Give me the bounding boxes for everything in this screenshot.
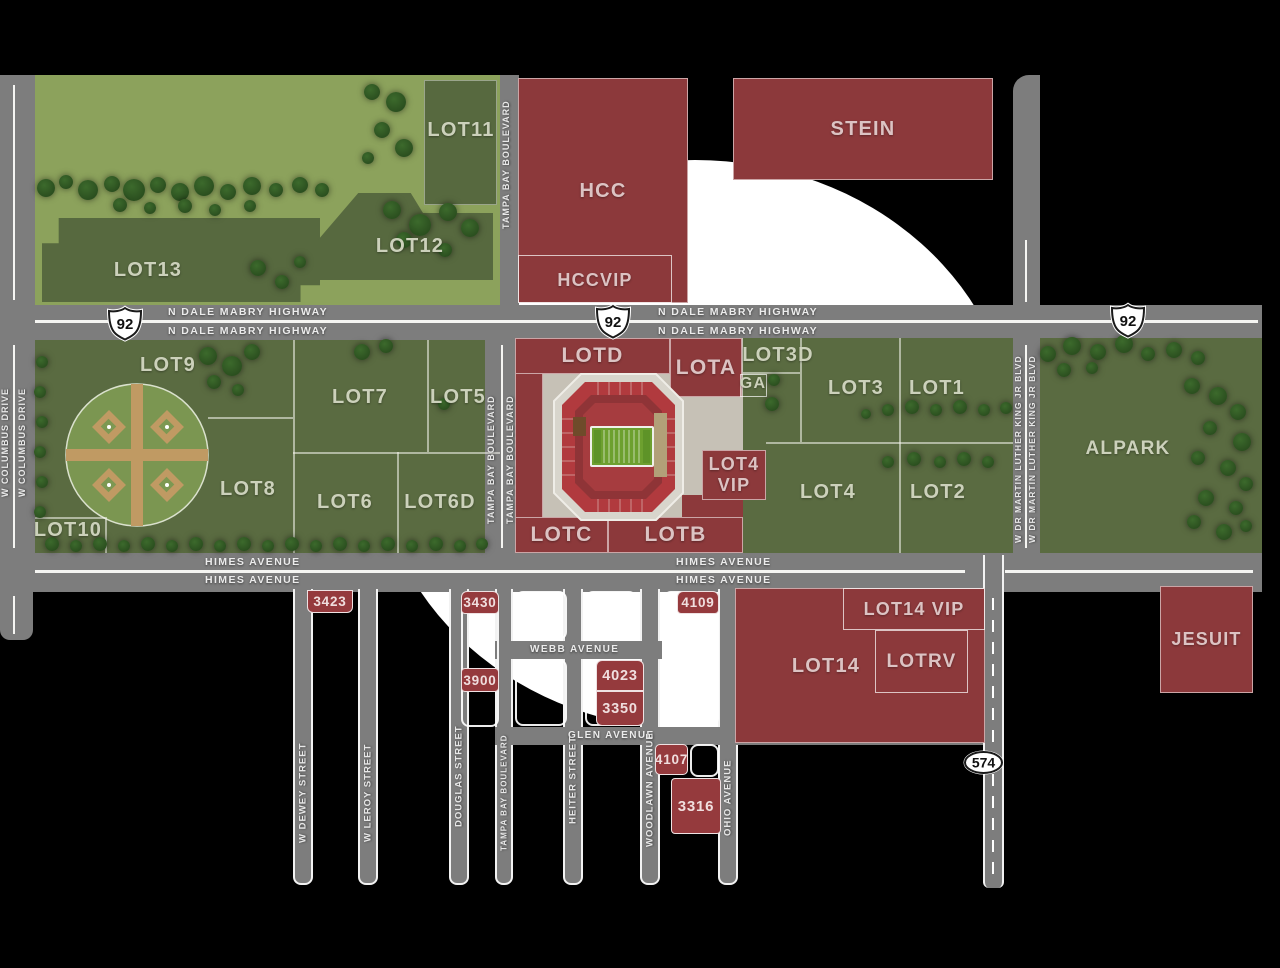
road-himes-label: HIMES AVENUE: [676, 574, 772, 586]
street-dewey-label: W DEWEY STREET: [294, 704, 312, 882]
route-92-text: 92: [1120, 313, 1137, 330]
lot-5-label[interactable]: LOT5: [398, 386, 518, 409]
street-ohio-label: OHIO AVENUE: [719, 714, 737, 882]
road-mlk-label: W DR MARTIN LUTHER KING JR BLVD: [1025, 338, 1039, 560]
road-dale-mabry-label: N DALE MABRY HIGHWAY: [658, 306, 818, 318]
road-tampa-bay-label: TAMPA BAY BOULEVARD: [483, 370, 499, 550]
center-line: [35, 320, 1258, 323]
street-heiter-label: HEITER STREET: [564, 695, 582, 865]
road-himes-label: HIMES AVENUE: [205, 556, 301, 568]
route-574-shield: 574: [963, 750, 1004, 775]
lot-9-label[interactable]: LOT9: [108, 354, 228, 377]
lot-6d-label[interactable]: LOT6D: [380, 491, 500, 514]
city-block: [515, 659, 567, 726]
route-574-text: 574: [972, 755, 996, 771]
lot-divider: [293, 340, 295, 553]
lot-13-label: LOT13: [88, 259, 208, 282]
lot-1-label[interactable]: LOT1: [877, 377, 997, 400]
lot14vip-label: LOT14 VIP: [864, 599, 965, 620]
city-block: [690, 744, 719, 777]
lot-4107[interactable]: 4107: [655, 744, 688, 775]
city-block: [585, 591, 637, 640]
center-line: [1005, 570, 1253, 573]
street-tampa-bay-label: TAMPA BAY BOULEVARD: [495, 705, 513, 880]
lot-3350[interactable]: 3350: [596, 691, 644, 726]
lot-4023[interactable]: 4023: [596, 660, 644, 691]
lotb-label: LOTB: [645, 523, 707, 547]
lot-d[interactable]: LOTD: [515, 338, 670, 374]
lot-3d-label[interactable]: LOT3D: [718, 344, 838, 367]
lotrv-label: LOTRV: [886, 651, 956, 673]
route-92-shield: 92: [594, 303, 632, 340]
lot-4-vip[interactable]: LOT4 VIP: [702, 450, 766, 500]
road-himes-label: HIMES AVENUE: [676, 556, 772, 568]
lot14-label: LOT14: [766, 655, 886, 678]
lots-east-green: [743, 338, 1013, 553]
lot-stein[interactable]: STEIN: [733, 78, 993, 180]
lot-divider: [766, 442, 1013, 444]
lot-divider: [208, 417, 293, 419]
street-leroy-label: W LEROY STREET: [359, 704, 377, 882]
lot4vip-label-2: VIP: [718, 475, 751, 496]
lot4vip-label-1: LOT4: [709, 454, 760, 475]
road-columbus-label: W COLUMBUS DRIVE: [0, 350, 12, 535]
lot-4109[interactable]: 4109: [677, 591, 719, 614]
lot-14-vip[interactable]: LOT14 VIP: [843, 588, 985, 630]
center-line: [35, 570, 965, 573]
lot-3316[interactable]: 3316: [671, 778, 721, 834]
ga-label: GA: [693, 375, 813, 393]
lot-3900[interactable]: 3900: [461, 668, 499, 692]
lot-11[interactable]: [424, 80, 497, 205]
road-dale-mabry-label: N DALE MABRY HIGHWAY: [168, 325, 328, 337]
lot-3423[interactable]: 3423: [307, 590, 353, 613]
stein-label: STEIN: [831, 118, 896, 141]
lot-12-label: LOT12: [350, 235, 470, 258]
lotd-label: LOTD: [562, 344, 624, 368]
road-dale-mabry-label: N DALE MABRY HIGHWAY: [658, 325, 818, 337]
road-columbus-label: W COLUMBUS DRIVE: [15, 350, 29, 535]
road-tampa-bay-label: TAMPA BAY BOULEVARD: [502, 370, 518, 550]
street-woodlawn-label: WOODLAWN AVENUE: [641, 700, 659, 880]
route-92-shield: 92: [1109, 302, 1147, 339]
road-tampa-bay-label: TAMPA BAY BOULEVARD: [498, 85, 514, 245]
road-dale-mabry-label: N DALE MABRY HIGHWAY: [168, 306, 328, 318]
lane-line: [1025, 240, 1027, 302]
lot-4-label[interactable]: LOT4: [768, 481, 888, 504]
hcc-label: HCC: [543, 180, 663, 203]
lane-line-dashed: [992, 598, 994, 880]
lane-line: [13, 85, 15, 300]
ballfields-graphic: [63, 381, 211, 529]
road-webb-label: WEBB AVENUE: [530, 644, 619, 655]
route-92-text: 92: [605, 314, 622, 331]
lot-divider: [899, 338, 901, 553]
lot-2-label[interactable]: LOT2: [878, 481, 998, 504]
lot-3430[interactable]: 3430: [461, 591, 499, 614]
lot-d-west[interactable]: [515, 373, 543, 518]
city-block: [515, 591, 567, 640]
lot-rv[interactable]: LOTRV: [875, 630, 968, 693]
stadium: [551, 371, 686, 523]
route-92-shield: 92: [106, 305, 144, 342]
parking-map: LOT13 LOT11 LOT12 LOT9 LOT7 LOT5 LOT8 LO…: [0, 0, 1280, 968]
route-92-text: 92: [117, 316, 134, 333]
lane-line: [13, 596, 15, 634]
alpark-label: ALPARK: [1068, 438, 1188, 460]
hccvip-label: HCCVIP: [535, 270, 655, 291]
lotc-label: LOTC: [531, 523, 593, 547]
lot-jesuit[interactable]: JESUIT: [1160, 586, 1253, 693]
road-mlk-label: W DR MARTIN LUTHER KING JR BLVD: [1011, 338, 1025, 560]
jesuit-label: JESUIT: [1171, 629, 1241, 650]
road-himes-label: HIMES AVENUE: [205, 574, 301, 586]
street-douglas-label: DOUGLAS STREET: [450, 690, 468, 862]
